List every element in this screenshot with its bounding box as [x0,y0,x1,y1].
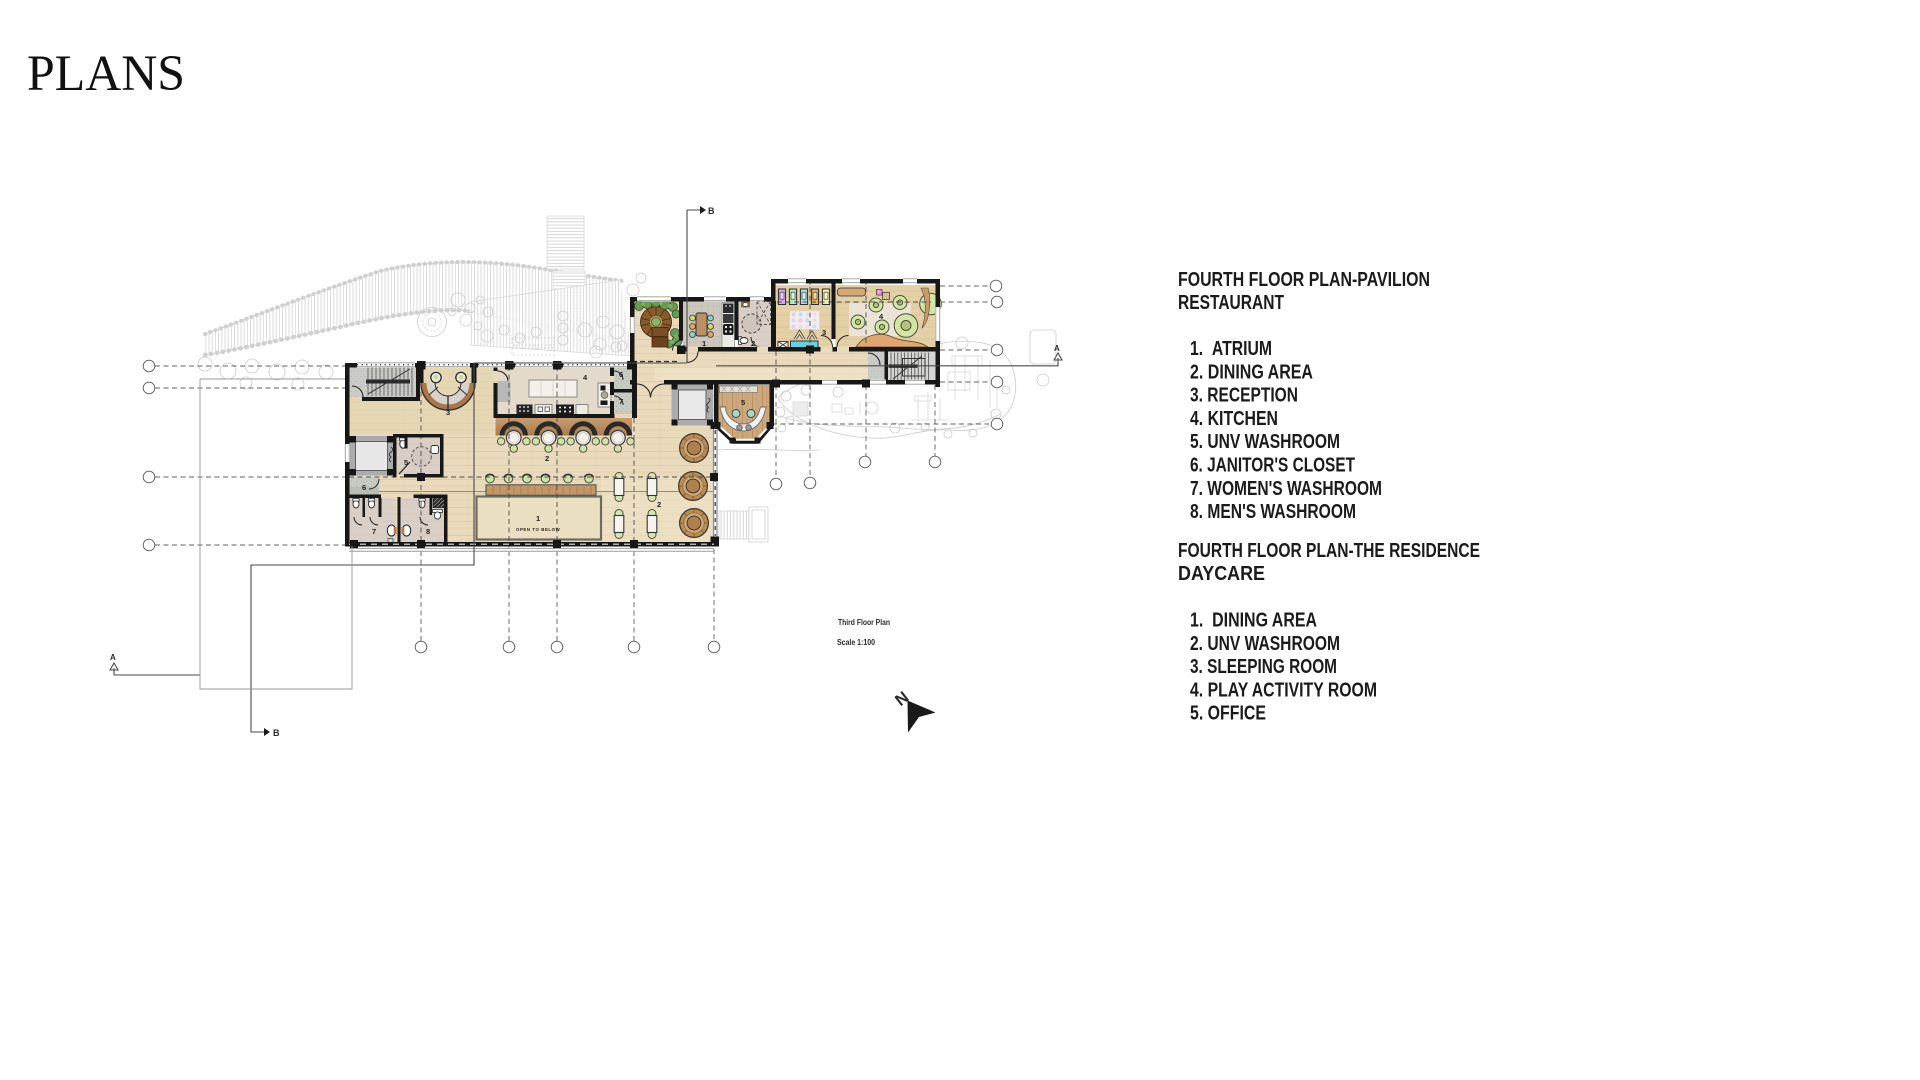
svg-text:8. MEN'S WASHROOM: 8. MEN'S WASHROOM [1190,501,1356,523]
svg-text:FOURTH FLOOR PLAN-THE RESIDENC: FOURTH FLOOR PLAN-THE RESIDENCE [1178,539,1480,562]
svg-text:3: 3 [446,408,450,417]
svg-text:5: 5 [404,458,408,467]
svg-text:4. PLAY ACTIVITY ROOM: 4. PLAY ACTIVITY ROOM [1190,679,1377,701]
svg-text:3. RECEPTION: 3. RECEPTION [1190,385,1298,407]
svg-text:5: 5 [741,398,745,407]
svg-text:7: 7 [372,527,376,536]
svg-text:Scale 1:100: Scale 1:100 [837,637,875,647]
svg-text:6: 6 [619,370,623,379]
svg-text:A: A [1054,344,1060,353]
svg-text:2. UNV WASHROOM: 2. UNV WASHROOM [1190,633,1340,655]
svg-text:4. KITCHEN: 4. KITCHEN [1190,408,1278,430]
svg-text:B: B [708,206,715,216]
svg-text:RESTAURANT: RESTAURANT [1178,291,1284,314]
svg-text:3. SLEEPING ROOM: 3. SLEEPING ROOM [1190,656,1337,678]
svg-text:2: 2 [545,454,549,463]
svg-text:1. ATRIUM: 1. ATRIUM [1190,338,1272,360]
svg-text:Third Floor Plan: Third Floor Plan [838,617,890,627]
svg-text:7: 7 [619,397,623,406]
svg-text:2: 2 [657,500,661,509]
svg-text:B: B [273,728,280,738]
svg-text:FOURTH FLOOR PLAN-PAVILION: FOURTH FLOOR PLAN-PAVILION [1178,268,1430,291]
svg-text:8: 8 [426,527,430,536]
svg-text:OPEN TO BELOW: OPEN TO BELOW [516,527,561,532]
svg-text:PLANS: PLANS [27,46,185,102]
svg-text:DAYCARE: DAYCARE [1178,562,1265,585]
svg-text:A: A [110,653,116,662]
svg-text:5. UNV WASHROOM: 5. UNV WASHROOM [1190,431,1340,453]
svg-text:6: 6 [362,483,366,492]
svg-text:2. DINING AREA: 2. DINING AREA [1190,361,1313,383]
svg-text:1: 1 [536,514,540,523]
svg-text:7. WOMEN'S WASHROOM: 7. WOMEN'S WASHROOM [1190,478,1382,500]
svg-text:2: 2 [751,339,755,348]
svg-text:6. JANITOR'S CLOSET: 6. JANITOR'S CLOSET [1190,455,1355,477]
svg-text:1: 1 [702,339,706,348]
svg-text:5. OFFICE: 5. OFFICE [1190,703,1266,725]
svg-text:3: 3 [822,328,826,337]
svg-text:1. DINING AREA: 1. DINING AREA [1190,610,1317,632]
